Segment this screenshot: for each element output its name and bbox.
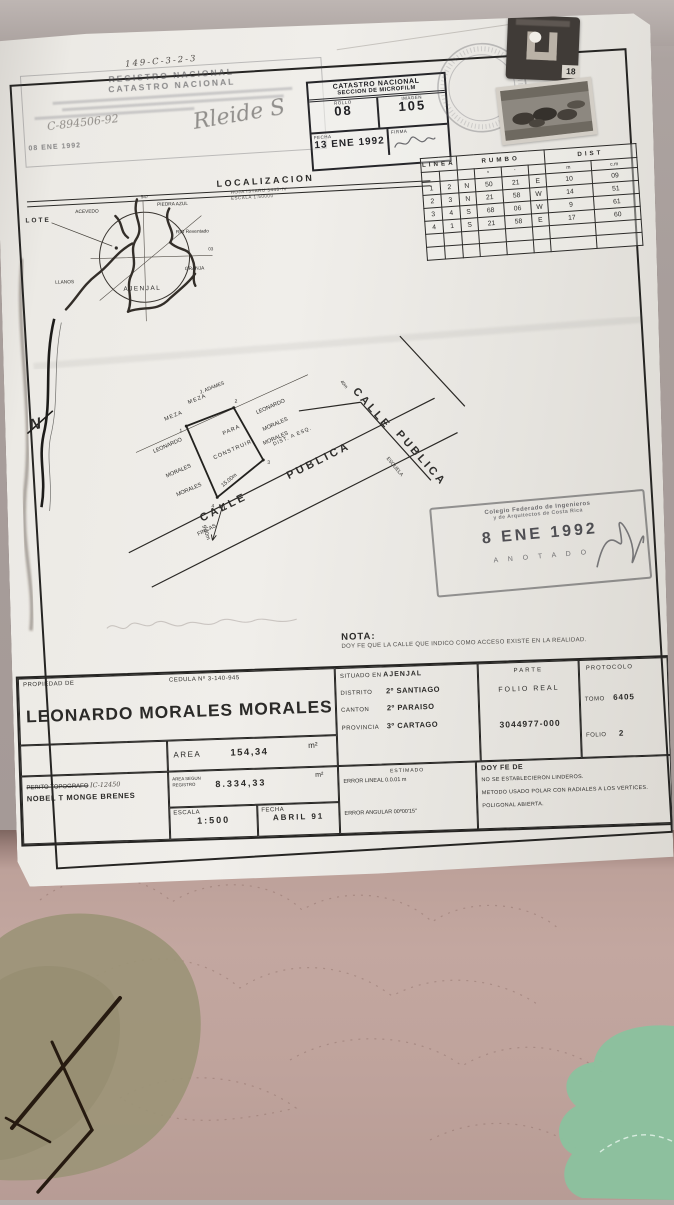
situado-label: SITUADO EN bbox=[340, 673, 382, 680]
error-angular: ERROR ANGULAR 00º00'15" bbox=[344, 806, 476, 816]
cell: N bbox=[459, 192, 477, 206]
protocolo-label: PROTOCOLO bbox=[586, 663, 667, 672]
cedula-value: CEDULA Nº 3-140-945 bbox=[169, 675, 240, 683]
lote-label: LOTE bbox=[25, 217, 51, 225]
area-unit: m² bbox=[308, 741, 318, 750]
dist-value-label: 40m bbox=[339, 379, 349, 389]
north-arrow: N bbox=[20, 314, 88, 521]
cell: 3 bbox=[424, 207, 443, 221]
distrito-value: 2º SANTIAGO bbox=[386, 685, 440, 696]
folio-real-value: 3044977-000 bbox=[480, 717, 579, 730]
llanos-label: LLANOS bbox=[55, 279, 74, 286]
blank-cell bbox=[20, 741, 168, 777]
lot-location-dot bbox=[115, 246, 118, 249]
cell: W bbox=[530, 187, 548, 201]
stamp-top-text-bar bbox=[516, 19, 570, 27]
cfia-stamp: Colegio Federado de Ingenieros y de Arqu… bbox=[429, 489, 652, 598]
propiedad-label: PROPIEDAD DE bbox=[23, 681, 75, 689]
cell: 4 bbox=[425, 220, 444, 234]
postage-stamp bbox=[496, 77, 598, 146]
calle-bottom-label: CALLE bbox=[198, 491, 250, 525]
cell: 2 bbox=[423, 194, 442, 208]
tomo-value: 6405 bbox=[613, 692, 635, 702]
cell: 1 bbox=[443, 219, 462, 233]
owner-name: LEONARDO MORALES MORALES bbox=[26, 697, 333, 727]
cell: N bbox=[458, 179, 476, 193]
publica-right-label: PUBLICA bbox=[393, 428, 448, 488]
canton-label: CANTON bbox=[341, 707, 369, 714]
grid-north-label: 547 bbox=[141, 194, 149, 199]
protocolo-cell: PROTOCOLO TOMO 6405 FOLIO 2 bbox=[579, 657, 671, 758]
folio-value: 2 bbox=[619, 729, 624, 738]
cell: 2 bbox=[440, 180, 459, 194]
owner-left-3: MORALES bbox=[176, 482, 203, 498]
fe-line3: POLIGONAL ABIERTA. bbox=[482, 797, 671, 809]
distrito-label: DISTRITO bbox=[340, 690, 372, 697]
meza-label-1: MEZA bbox=[187, 393, 207, 406]
para-label: PARA bbox=[222, 424, 241, 437]
area-label: AREA bbox=[173, 750, 201, 760]
perito-number: IC-12450 bbox=[90, 780, 121, 789]
owner-right-1: LEONARDO bbox=[255, 398, 286, 416]
cell: E bbox=[531, 213, 549, 227]
dark-ink-stamp: 18 bbox=[506, 15, 581, 82]
cfia-signature-squiggle bbox=[581, 498, 658, 584]
publica-bottom-label: PUBLICA bbox=[285, 440, 353, 482]
ajenjal-label: AJENJAL bbox=[123, 285, 161, 293]
owner-cell: PROPIEDAD DE CEDULA Nº 3-140-945 LEONARD… bbox=[18, 668, 337, 745]
error-cell: ESTIMADO ERROR LINEAL 0.0.01 m ERROR ANG… bbox=[338, 761, 478, 834]
cell: S bbox=[461, 218, 479, 232]
vertex-1: 1 bbox=[179, 428, 182, 434]
fe-line1: NO SE ESTABLECIERON LINDEROS. bbox=[481, 771, 670, 783]
map-crosshair bbox=[89, 199, 214, 322]
perito-label: PERITO TOPOGRAFO bbox=[26, 783, 88, 791]
meza-label-2: MEZA bbox=[164, 410, 184, 423]
postage-stamp-picture bbox=[500, 81, 593, 141]
tomo-label: TOMO bbox=[585, 696, 605, 703]
folio-real-label: FOLIO REAL bbox=[479, 684, 578, 694]
cell: E bbox=[529, 174, 547, 188]
survey-plan-paper: 149-C-3-2-3 29462 REGISTRO NACIONAL CATA… bbox=[0, 13, 674, 887]
vertex-4: 4 bbox=[211, 503, 214, 509]
piedra-azul-label: PIEDRA AZUL bbox=[157, 201, 188, 208]
quilted-fabric bbox=[0, 830, 674, 1200]
cell: 4 bbox=[442, 206, 461, 220]
revenue-stamp-value: 18 bbox=[562, 65, 581, 79]
parte-label: PARTE bbox=[479, 666, 578, 675]
granja-label: GRANJA bbox=[185, 266, 205, 273]
owner-left-2: MORALES bbox=[165, 463, 192, 479]
fe-line2: METODO USADO POLAR CON RADIALES A LOS VE… bbox=[482, 784, 671, 796]
registry-date-stamp: 08 ENE 1992 bbox=[28, 142, 81, 152]
provincia-value: 3º CARTAGO bbox=[387, 720, 439, 731]
location-cell: SITUADO EN AJENJAL DISTRITO 2º SANTIAGO … bbox=[335, 663, 481, 766]
nota-label: NOTA: bbox=[341, 631, 376, 643]
perito-cell: PERITO TOPOGRAFO IC-12450 NOBEL T MONGE … bbox=[21, 772, 170, 845]
provincia-label: PROVINCIA bbox=[342, 725, 380, 732]
site-plan-labels: CALLE PUBLICA FINCAS CALLE PUBLICA ESCUE… bbox=[151, 374, 451, 543]
folio-label: FOLIO bbox=[586, 732, 607, 739]
bearings-table: LINEA RUMBO DIST º ' m c.m 12N5021E1009 … bbox=[420, 143, 644, 261]
situado-value: AJENJAL bbox=[383, 670, 422, 678]
perito-name: NOBEL T MONGE BRENES bbox=[27, 790, 168, 804]
cell: 3 bbox=[441, 193, 460, 207]
area-reg-label2: REGISTRO bbox=[172, 781, 201, 787]
fabric-artwork bbox=[0, 830, 674, 1200]
doyfe-label: DOY FE DE bbox=[481, 759, 670, 772]
area-reg-unit: m² bbox=[315, 772, 323, 779]
area-value: 154,34 bbox=[230, 746, 268, 758]
folio-real-cell: PARTE FOLIO REAL 3044977-000 bbox=[478, 660, 582, 761]
error-lineal: ERROR LINEAL 0.0.01 m bbox=[343, 775, 475, 785]
firma-signature-squiggle bbox=[391, 131, 438, 152]
area-reg-value: 8.334,33 bbox=[215, 777, 266, 789]
registry-stamp: REGISTRO NACIONAL CATASTRO NACIONAL C-89… bbox=[20, 57, 327, 168]
acevedo-label: ACEVEDO bbox=[75, 208, 99, 215]
title-block-table: PROPIEDAD DE CEDULA Nº 3-140-945 LEONARD… bbox=[16, 655, 674, 847]
cell: S bbox=[460, 205, 478, 219]
mint-leaf-patch bbox=[559, 1025, 674, 1200]
vertex-3: 3 bbox=[267, 460, 270, 466]
calle-right-label: CALLE bbox=[350, 385, 393, 432]
escuela-label: ESCUELA bbox=[385, 456, 405, 478]
rio-label: RIO Reventado bbox=[176, 228, 210, 235]
lote-pointer-line bbox=[52, 221, 113, 248]
vertex-2: 2 bbox=[235, 399, 238, 405]
north-letter: N bbox=[28, 415, 43, 434]
canton-value: 2º PARAISO bbox=[387, 702, 435, 713]
cattle-scene bbox=[500, 81, 593, 141]
coord-label: 03 bbox=[208, 246, 214, 251]
cell: W bbox=[531, 200, 549, 214]
area-registro-cell: AREA SEGUN REGISTRO 8.334,33 m² bbox=[168, 766, 339, 808]
fecha-cell: FECHA ABRIL 91 bbox=[257, 802, 340, 837]
escala-cell: ESCALA 1:500 bbox=[169, 805, 258, 840]
doyfe-cell: DOY FE DE NO SE ESTABLECIERON LINDEROS. … bbox=[476, 755, 673, 829]
owner-left-1: LEONARDO bbox=[152, 437, 183, 455]
construir-label: CONSTRUIR bbox=[213, 439, 254, 461]
